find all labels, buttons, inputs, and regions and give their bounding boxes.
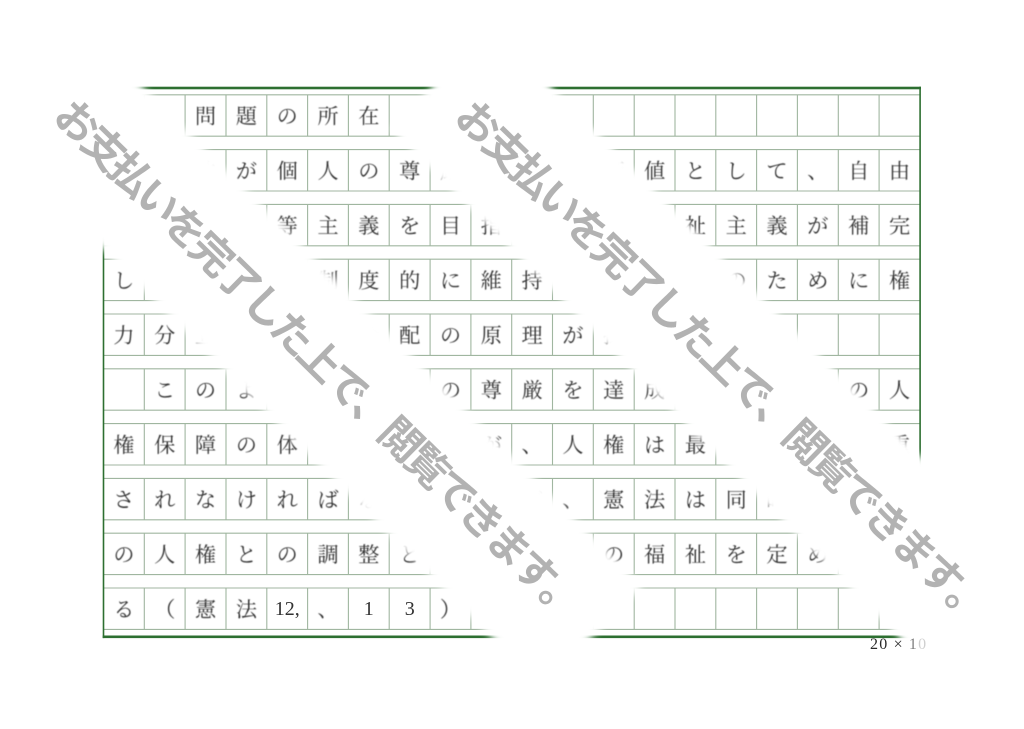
svg-text:3: 3 [405,598,415,620]
svg-text:20 ×: 20 × [870,636,904,653]
svg-text:1: 1 [364,598,374,620]
svg-text:1: 1 [909,636,918,653]
svg-text:0: 0 [918,636,927,653]
svg-text:12,: 12, [275,598,300,620]
